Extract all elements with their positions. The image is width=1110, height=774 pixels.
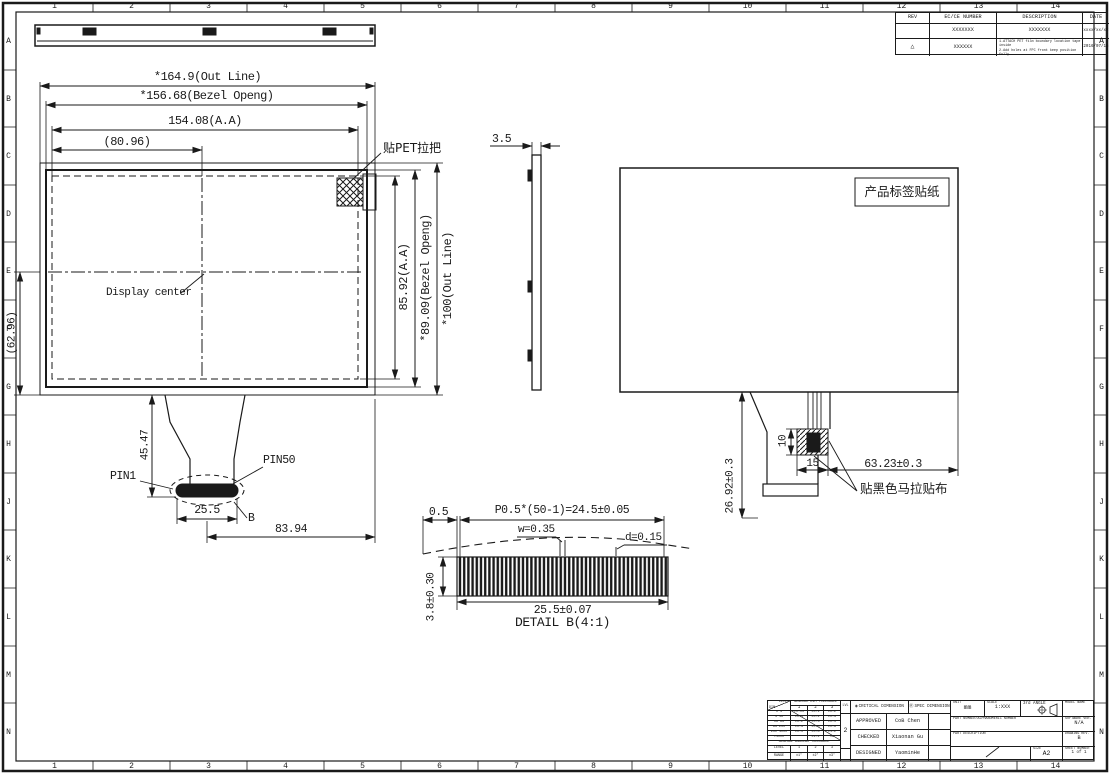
- ruler-label: G: [3, 358, 14, 416]
- ruler-label: 1: [16, 762, 93, 771]
- revision-triangle-icon: △: [896, 39, 930, 56]
- dim-pin-width: w=0.35: [518, 525, 555, 536]
- detail-b-linework: [423, 516, 694, 610]
- ruler-label: 14: [1017, 2, 1094, 11]
- ruler-label: 5: [324, 2, 401, 11]
- title-block: LEVEL DIM GENERAL DIM TOLERANCE 1 2 3 0~…: [767, 700, 1094, 760]
- ruler-label: 4: [247, 762, 324, 771]
- ruler-label: 14: [1017, 762, 1094, 771]
- ruler-label: 13: [940, 762, 1017, 771]
- ruler-label: 2: [93, 2, 170, 11]
- ruler-label: 9: [632, 2, 709, 11]
- tolerance-angular-cell: LEVEL: [768, 746, 791, 753]
- ruler-label: 9: [632, 762, 709, 771]
- top-view-linework: [35, 25, 375, 46]
- ruler-label: B: [1096, 70, 1107, 128]
- ruler-label: 10: [709, 762, 786, 771]
- ruler-label: A: [3, 12, 14, 70]
- approved-signature-cell: [929, 714, 951, 730]
- ruler-label: 11: [786, 762, 863, 771]
- drawing-rev-cell: DRAWING REV. B: [1063, 732, 1095, 747]
- product-label-sticker: 产品标签贴纸: [855, 178, 949, 206]
- spec-dimension-label: SPEC DIMENSION: [915, 705, 950, 709]
- part-number-cell: PART NUMBER/ALPHANUMERIC NUMBER: [951, 717, 1063, 732]
- dim-edge-margin: 0.5: [420, 507, 457, 519]
- ruler-label: G: [1096, 358, 1107, 416]
- scale-cell: SCALE 1:XXX: [985, 701, 1021, 717]
- ruler-label: M: [1096, 646, 1107, 704]
- tolerance-angular-cell: 3: [824, 746, 841, 753]
- applied-level-label: LVL: [841, 701, 851, 714]
- ruler-label: 1: [16, 2, 93, 11]
- size-cell: SIZE A2: [1031, 747, 1063, 761]
- ruler-label: N: [1096, 703, 1107, 761]
- tolerance-angular-cell: ±1°: [791, 753, 808, 761]
- dim-center-x: (80.96): [52, 136, 202, 148]
- critical-dimension-label: CRITICAL DIMENSION: [859, 705, 904, 709]
- critical-dimension-icon: ◉: [855, 705, 858, 709]
- dim-aa-height: 85.92(A.A): [398, 243, 410, 310]
- model-name-cell: MODEL NAME: [1063, 701, 1095, 717]
- dim-fpc-length: 26.92±0.3: [726, 459, 737, 514]
- revision-table: REV EC/CE NUMBER DESCRIPTION DATE XXXXXX…: [895, 12, 1108, 55]
- sheet-number-value: 1 of 1: [1063, 751, 1095, 755]
- unit-cell: UNIT mm: [951, 701, 985, 717]
- tolerance-angular-cell: ±3°: [824, 753, 841, 761]
- ruler-label: H: [3, 415, 14, 473]
- ruler-label: 6: [401, 2, 478, 11]
- ruler-label: J: [3, 473, 14, 531]
- unit-value: mm: [951, 705, 984, 712]
- revision-header-desc: DESCRIPTION: [997, 13, 1083, 24]
- dim-tab-width: 15: [797, 459, 828, 470]
- front-view-linework: [14, 82, 443, 543]
- applied-level-value: 2: [841, 714, 851, 749]
- revision-row-date: xxxx/xx/xx: [1083, 24, 1109, 39]
- pet-tab-label: 贴PET拉把: [383, 142, 441, 154]
- ruler-label: 12: [863, 762, 940, 771]
- critical-dimension-legend: ◉ CRITICAL DIMENSION: [851, 701, 909, 714]
- dim-bezel-width: *156.68(Bezel Openg): [46, 90, 367, 102]
- dim-outline-width: *164.9(Out Line): [40, 71, 375, 83]
- ruler-label: 3: [170, 2, 247, 11]
- spec-dimension-icon: Ⓡ: [909, 705, 913, 709]
- ruler-label: J: [1096, 473, 1107, 531]
- part-description-cell: PART DESCRIPTION: [951, 732, 1063, 747]
- dim-pin-pitch: P0.5*(50-1)=24.5±0.05: [460, 505, 664, 517]
- revision-row-ec: XXXXXXX: [930, 24, 997, 39]
- ruler-label: 2: [93, 762, 170, 771]
- ruler-label: 8: [555, 762, 632, 771]
- revision-header-date: DATE: [1083, 13, 1109, 24]
- spec-dimension-legend: Ⓡ SPEC DIMENSION: [909, 701, 951, 714]
- tolerance-corner-top: LEVEL: [779, 701, 789, 704]
- revision-row-ec: XXXXXX: [930, 39, 997, 56]
- ruler-label: 5: [324, 762, 401, 771]
- detail-b-title: DETAIL B(4:1): [457, 616, 668, 629]
- drawing-rev-value: B: [1063, 736, 1095, 741]
- dim-connector-height: 3.8±0.30: [427, 573, 438, 622]
- ruler-label: H: [1096, 415, 1107, 473]
- checked-signature-cell: [929, 730, 951, 746]
- applied-level-spacer: [841, 749, 851, 761]
- checked-label: CHECKED: [851, 730, 887, 746]
- approved-name: CoB Chen: [887, 714, 929, 730]
- ruler-label: 7: [478, 2, 555, 11]
- part-number-label: PART NUMBER/ALPHANUMERIC NUMBER: [951, 717, 1062, 721]
- dim-tab-height: 10: [779, 435, 790, 447]
- detail-b-ref-label: B: [248, 513, 254, 525]
- revision-header-ec: EC/CE NUMBER: [930, 13, 997, 24]
- ruler-label: 7: [478, 762, 555, 771]
- side-view-linework: [490, 142, 560, 390]
- part-description-label: PART DESCRIPTION: [951, 732, 1062, 736]
- designed-label: DESIGNED: [851, 746, 887, 761]
- revision-row-desc: XXXXXXX: [997, 24, 1083, 39]
- dim-left-ref: (62.96): [8, 312, 19, 355]
- tolerance-corner-cell: LEVEL DIM: [768, 701, 791, 711]
- revision-header-rev: REV: [896, 13, 930, 24]
- ruler-label: M: [3, 646, 14, 704]
- projection-angle-label: 3rd ANGLE: [1021, 701, 1062, 706]
- ruler-label: C: [3, 127, 14, 185]
- ruler-label: B: [3, 70, 14, 128]
- model-name-label: MODEL NAME: [1063, 701, 1095, 705]
- dim-fpc-drop: 45.47: [141, 430, 152, 461]
- ruler-label: D: [1096, 185, 1107, 243]
- revision-row-rev: [896, 24, 930, 39]
- tolerance-angular-cell: 1: [791, 746, 808, 753]
- ruler-label: C: [1096, 127, 1107, 185]
- dim-bezel-height: *89.09(Bezel Openg): [420, 214, 432, 341]
- ruler-label: F: [1096, 300, 1107, 358]
- ruler-label: K: [3, 530, 14, 588]
- ruler-label: 6: [401, 762, 478, 771]
- ruler-label: 4: [247, 2, 324, 11]
- sheet-number-cell: SHEET NUMBER 1 of 1: [1063, 747, 1095, 761]
- revision-row-desc: 1.ATTACH PET film boundary location tape…: [997, 39, 1083, 56]
- ruler-label: L: [3, 588, 14, 646]
- dim-connector-offset: 83.94: [207, 524, 375, 536]
- ruler-label: 11: [786, 2, 863, 11]
- display-center-label: Display center: [106, 288, 191, 299]
- ruler-label: E: [1096, 242, 1107, 300]
- ruler-label: 3: [170, 762, 247, 771]
- ruler-label: 12: [863, 2, 940, 11]
- ruler-label: D: [3, 185, 14, 243]
- software-version-cell: SOFTWARE VER. N/A: [1063, 717, 1095, 732]
- ruler-label: L: [1096, 588, 1107, 646]
- slash-cell: [951, 747, 1031, 761]
- ruler-label: 8: [555, 2, 632, 11]
- revision-row-date: 2016/07/16: [1083, 39, 1109, 56]
- designed-signature-cell: [929, 746, 951, 761]
- projection-angle-cell: 3rd ANGLE: [1021, 701, 1063, 717]
- checked-name: Xiaonan Gu: [887, 730, 929, 746]
- dim-thickness: 3.5: [492, 134, 511, 146]
- engineering-drawing-sheet: { "colors": {"line": "#1a1a1a", "paper":…: [0, 0, 1110, 774]
- ruler-label: N: [3, 703, 14, 761]
- software-version-value: N/A: [1063, 721, 1095, 726]
- ruler-label: K: [1096, 530, 1107, 588]
- dim-pin-depth: d=0.15: [625, 533, 662, 544]
- dim-tab-offset: 63.23±0.3: [833, 459, 953, 471]
- tolerance-corner-bottom: DIM: [769, 707, 775, 710]
- dim-aa-width: 154.08(A.A): [52, 115, 358, 127]
- pin1-label: PIN1: [110, 471, 136, 483]
- scale-value: 1:XXX: [985, 705, 1020, 710]
- mylar-tape-label: 贴黑色马拉贴布: [860, 483, 948, 496]
- ruler-label: 13: [940, 2, 1017, 11]
- ruler-label: E: [3, 242, 14, 300]
- tolerance-angular-cell: ±2°: [808, 753, 824, 761]
- dim-connector-width: 25.5: [177, 505, 237, 517]
- tolerance-angular-cell: RANGE: [768, 753, 791, 761]
- tolerance-angular-cell: 2: [808, 746, 824, 753]
- ruler-label: 10: [709, 2, 786, 11]
- pin50-label: PIN50: [263, 455, 295, 467]
- size-value: A2: [1031, 751, 1062, 758]
- approved-label: APPROVED: [851, 714, 887, 730]
- designed-name: YaominHe: [887, 746, 929, 761]
- dim-outline-height: *100(Out Line): [442, 232, 454, 326]
